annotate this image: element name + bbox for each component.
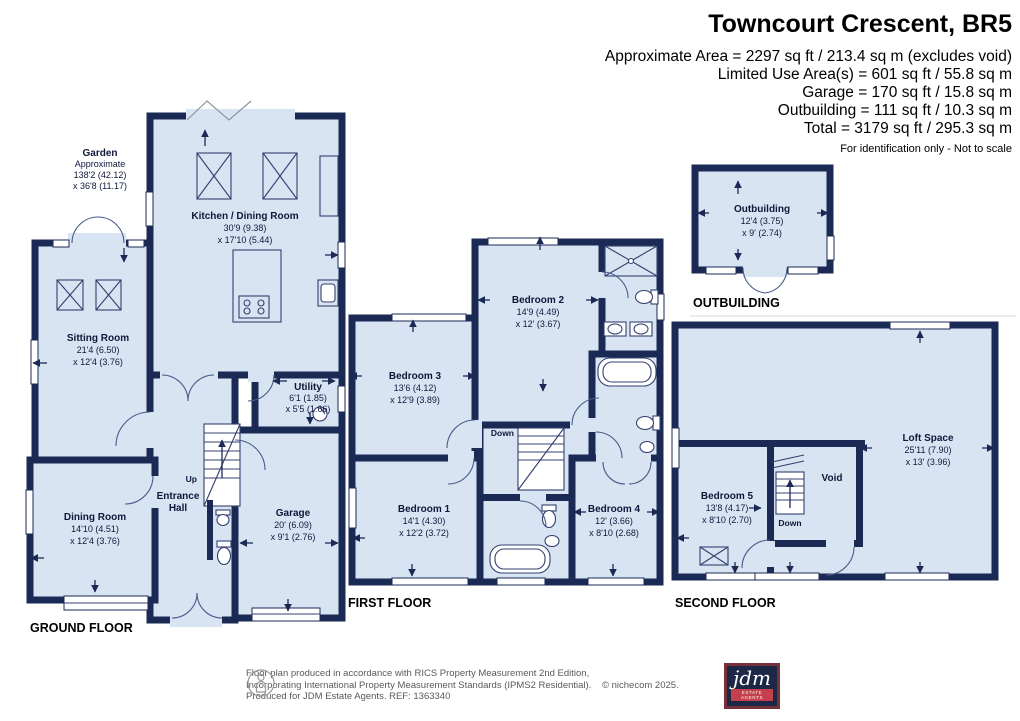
bedroom4-dim: x 8'10 (2.68) [589, 528, 639, 538]
garden-note: Approximate [75, 159, 126, 169]
bedroom3-label: Bedroom 3 [389, 371, 442, 382]
bedroom1-label: Bedroom 1 [398, 504, 451, 515]
jdm-logo-text: jdm [727, 668, 777, 688]
garage-dim: 20' (6.09) [274, 520, 312, 530]
utility-dim: x 5'5 (1.66) [286, 404, 331, 414]
void-label: Void [822, 473, 843, 484]
person-icon [246, 668, 276, 702]
sitting-room-dim: 21'4 (6.50) [77, 345, 120, 355]
footer-line2: Incorporating International Property Mea… [246, 680, 591, 691]
bedroom2-dim: 14'9 (4.49) [517, 307, 560, 317]
stairs-down-first [518, 428, 564, 490]
first-floor-plan: Bedroom 2 14'9 (4.49) x 12' (3.67) Bedro… [348, 237, 664, 610]
loft-space-label: Loft Space [902, 433, 954, 444]
bedroom1-dim: x 12'2 (3.72) [399, 528, 449, 538]
bedroom5-dim: 13'8 (4.17) [706, 503, 749, 513]
stairs-up [204, 424, 240, 506]
entrance-hall-label: Hall [169, 503, 188, 514]
loft-space-dim: 25'11 (7.90) [904, 445, 951, 455]
footer-line1: Floor plan produced in accordance with R… [246, 668, 589, 679]
first-floor-title: FIRST FLOOR [348, 596, 431, 610]
counter [320, 156, 338, 216]
bedroom2-label: Bedroom 2 [512, 295, 565, 306]
floorplan-drawing: Garden Approximate 138'2 (42.12) x 36'8 … [0, 0, 1020, 721]
ground-floor-title: GROUND FLOOR [30, 621, 133, 635]
garden-dim: 138'2 (42.12) [74, 170, 127, 180]
dining-room-label: Dining Room [64, 512, 126, 523]
outbuilding-plan: Outbuilding 12'4 (3.75) x 9' (2.74) OUTB… [693, 168, 834, 310]
kitchen-dim: x 17'10 (5.44) [218, 235, 273, 245]
footer-text: Floor plan produced in accordance with R… [246, 668, 679, 703]
dining-room-dim: x 12'4 (3.76) [70, 536, 120, 546]
bedroom2-dim: x 12' (3.67) [516, 319, 561, 329]
outbuilding-dim: x 9' (2.74) [742, 228, 782, 238]
bedroom5-label: Bedroom 5 [701, 491, 754, 502]
kitchen-label: Kitchen / Dining Room [191, 211, 298, 222]
second-skylight-icon [700, 547, 728, 565]
hob-icon [239, 296, 269, 318]
basin-icon [545, 536, 559, 547]
basin-icon [640, 442, 654, 453]
bedroom3-dim: x 12'9 (3.89) [390, 395, 440, 405]
bedroom1-dim: 14'1 (4.30) [403, 516, 446, 526]
second-floor-title: SECOND FLOOR [675, 596, 776, 610]
jdm-logo-subtext: ESTATE AGENTS [731, 689, 773, 701]
bedroom4-dim: 12' (3.66) [595, 516, 633, 526]
entrance-hall-label: Entrance [157, 491, 200, 502]
second-floor-plan: Loft Space 25'11 (7.90) x 13' (3.96) Bed… [672, 322, 995, 610]
bedroom3-dim: 13'6 (4.12) [394, 383, 437, 393]
bedroom2-room [475, 242, 602, 425]
footer-copyright: © nichecom 2025. [602, 680, 679, 691]
utility-dim: 6'1 (1.85) [289, 393, 327, 403]
bedroom4-label: Bedroom 4 [588, 504, 641, 515]
bedroom5-dim: x 8'10 (2.70) [702, 515, 752, 525]
kitchen-dining-room [150, 116, 342, 375]
footer: Floor plan produced in accordance with R… [246, 668, 679, 703]
garage-label: Garage [276, 508, 311, 519]
stairs-down-label: Down [778, 518, 801, 528]
loft-space-dim: x 13' (3.96) [906, 457, 951, 467]
outbuilding-dim: 12'4 (3.75) [741, 216, 784, 226]
utility-label: Utility [294, 382, 322, 393]
sitting-room-dim: x 12'4 (3.76) [73, 357, 123, 367]
kitchen-dim: 30'9 (9.38) [224, 223, 267, 233]
outbuilding-label: Outbuilding [734, 204, 790, 215]
jdm-logo: jdm ESTATE AGENTS [724, 663, 780, 709]
footer-line3: Produced for JDM Estate Agents. REF: 136… [246, 691, 450, 702]
garden-label: Garden [82, 148, 117, 159]
dining-room-dim: 14'10 (4.51) [71, 524, 119, 534]
sitting-room-label: Sitting Room [67, 333, 129, 344]
ground-floor-plan: Garden Approximate 138'2 (42.12) x 36'8 … [26, 101, 345, 635]
toilet-icon [217, 541, 231, 547]
stairs-down-label: Down [491, 428, 514, 438]
garden-dim: x 36'8 (11.17) [73, 181, 127, 191]
floorplan-page: Towncourt Crescent, BR5 Approximate Area… [0, 0, 1020, 721]
stairs-up-label: Up [186, 474, 197, 484]
outbuilding-title: OUTBUILDING [693, 296, 780, 310]
garage-dim: x 9'1 (2.76) [271, 532, 316, 542]
